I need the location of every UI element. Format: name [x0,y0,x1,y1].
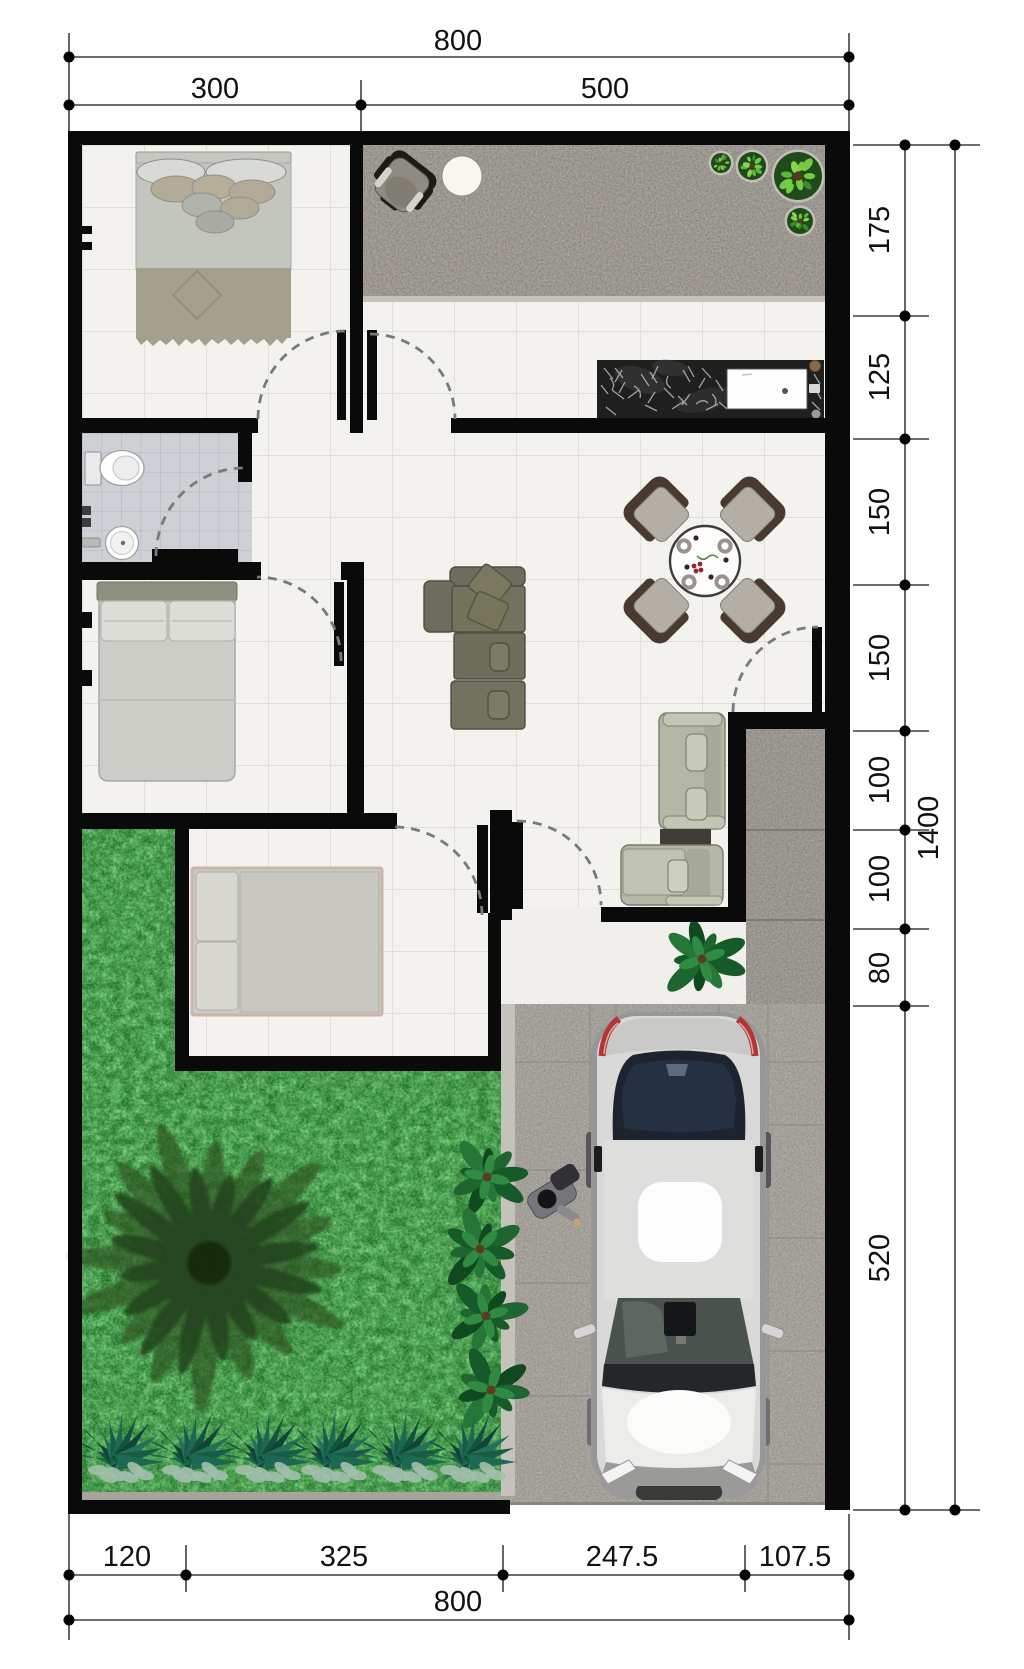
svg-text:500: 500 [581,73,629,105]
svg-text:107.5: 107.5 [759,1541,832,1573]
svg-text:300: 300 [191,73,239,105]
svg-text:150: 150 [864,488,896,536]
svg-text:520: 520 [864,1234,896,1282]
svg-text:800: 800 [434,1586,482,1618]
svg-text:175: 175 [864,206,896,254]
svg-text:150: 150 [864,634,896,682]
svg-text:800: 800 [434,25,482,57]
svg-text:325: 325 [320,1541,368,1573]
svg-text:247.5: 247.5 [586,1541,659,1573]
svg-text:100: 100 [864,756,896,804]
svg-text:125: 125 [864,353,896,401]
svg-text:120: 120 [103,1541,151,1573]
svg-text:1400: 1400 [913,796,945,861]
svg-text:80: 80 [864,952,896,984]
svg-text:100: 100 [864,855,896,903]
